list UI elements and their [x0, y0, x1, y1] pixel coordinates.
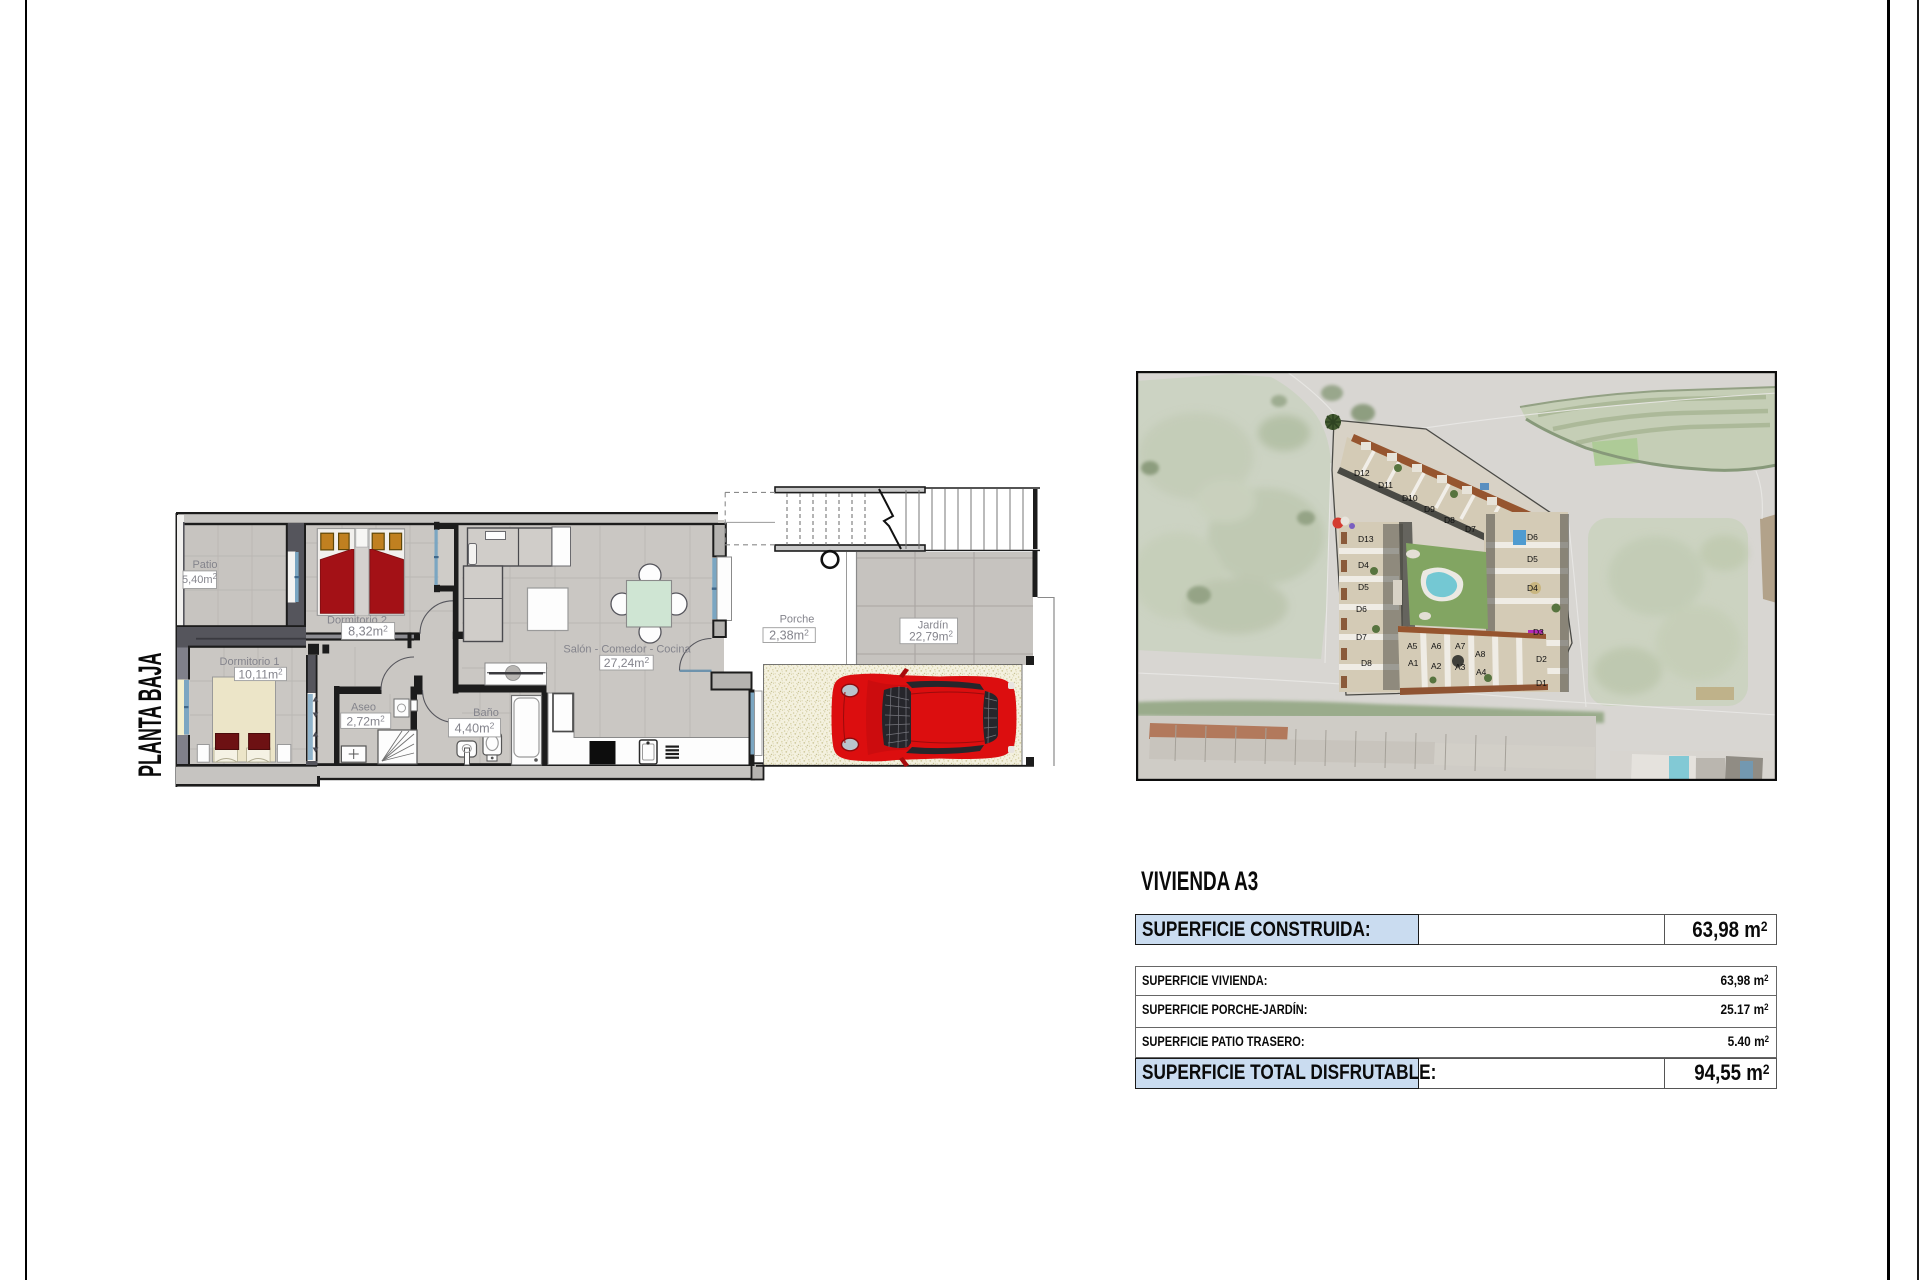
svg-text:Aseo: Aseo — [351, 702, 376, 714]
svg-text:D10: D10 — [1402, 493, 1418, 503]
svg-text:D7: D7 — [1465, 524, 1476, 534]
svg-text:27,24m2: 27,24m2 — [604, 655, 650, 670]
svg-text:A3: A3 — [1455, 662, 1466, 672]
svg-text:22,79m2: 22,79m2 — [909, 630, 953, 644]
svg-text:Patio: Patio — [192, 559, 217, 571]
svg-text:D12: D12 — [1354, 468, 1370, 478]
svg-text:A4: A4 — [1476, 667, 1487, 677]
svg-text:D8: D8 — [1361, 658, 1372, 668]
svg-text:Salón - Comedor - Cocina: Salón - Comedor - Cocina — [563, 644, 691, 656]
svg-text:D6: D6 — [1527, 532, 1538, 542]
svg-text:A1: A1 — [1408, 658, 1419, 668]
svg-text:D1: D1 — [1536, 678, 1547, 688]
svg-text:D6: D6 — [1356, 604, 1367, 614]
svg-text:D5: D5 — [1358, 582, 1369, 592]
svg-text:D2: D2 — [1536, 654, 1547, 664]
svg-text:4,40m2: 4,40m2 — [455, 720, 495, 735]
svg-text:D7: D7 — [1356, 632, 1367, 642]
svg-text:D8: D8 — [1444, 515, 1455, 525]
svg-text:D13: D13 — [1358, 534, 1374, 544]
svg-text:A2: A2 — [1431, 661, 1442, 671]
svg-text:D9: D9 — [1424, 504, 1435, 514]
svg-text:10,11m2: 10,11m2 — [238, 667, 283, 681]
svg-text:A5: A5 — [1407, 641, 1418, 651]
svg-text:D4: D4 — [1358, 560, 1369, 570]
svg-text:A6: A6 — [1431, 641, 1442, 651]
svg-text:A8: A8 — [1475, 649, 1486, 659]
svg-text:Dormitorio 1: Dormitorio 1 — [220, 656, 280, 668]
svg-text:D3: D3 — [1533, 627, 1544, 637]
svg-text:2,72m2: 2,72m2 — [346, 714, 385, 728]
svg-text:Porche: Porche — [780, 614, 815, 626]
svg-text:Baño: Baño — [473, 707, 499, 719]
svg-text:5,40m2: 5,40m2 — [182, 572, 218, 586]
svg-text:D5: D5 — [1527, 554, 1538, 564]
svg-text:8,32m2: 8,32m2 — [348, 624, 388, 639]
svg-text:D4: D4 — [1527, 583, 1538, 593]
svg-text:D11: D11 — [1378, 480, 1393, 490]
svg-text:2,38m2: 2,38m2 — [769, 628, 809, 643]
svg-text:A7: A7 — [1455, 641, 1466, 651]
